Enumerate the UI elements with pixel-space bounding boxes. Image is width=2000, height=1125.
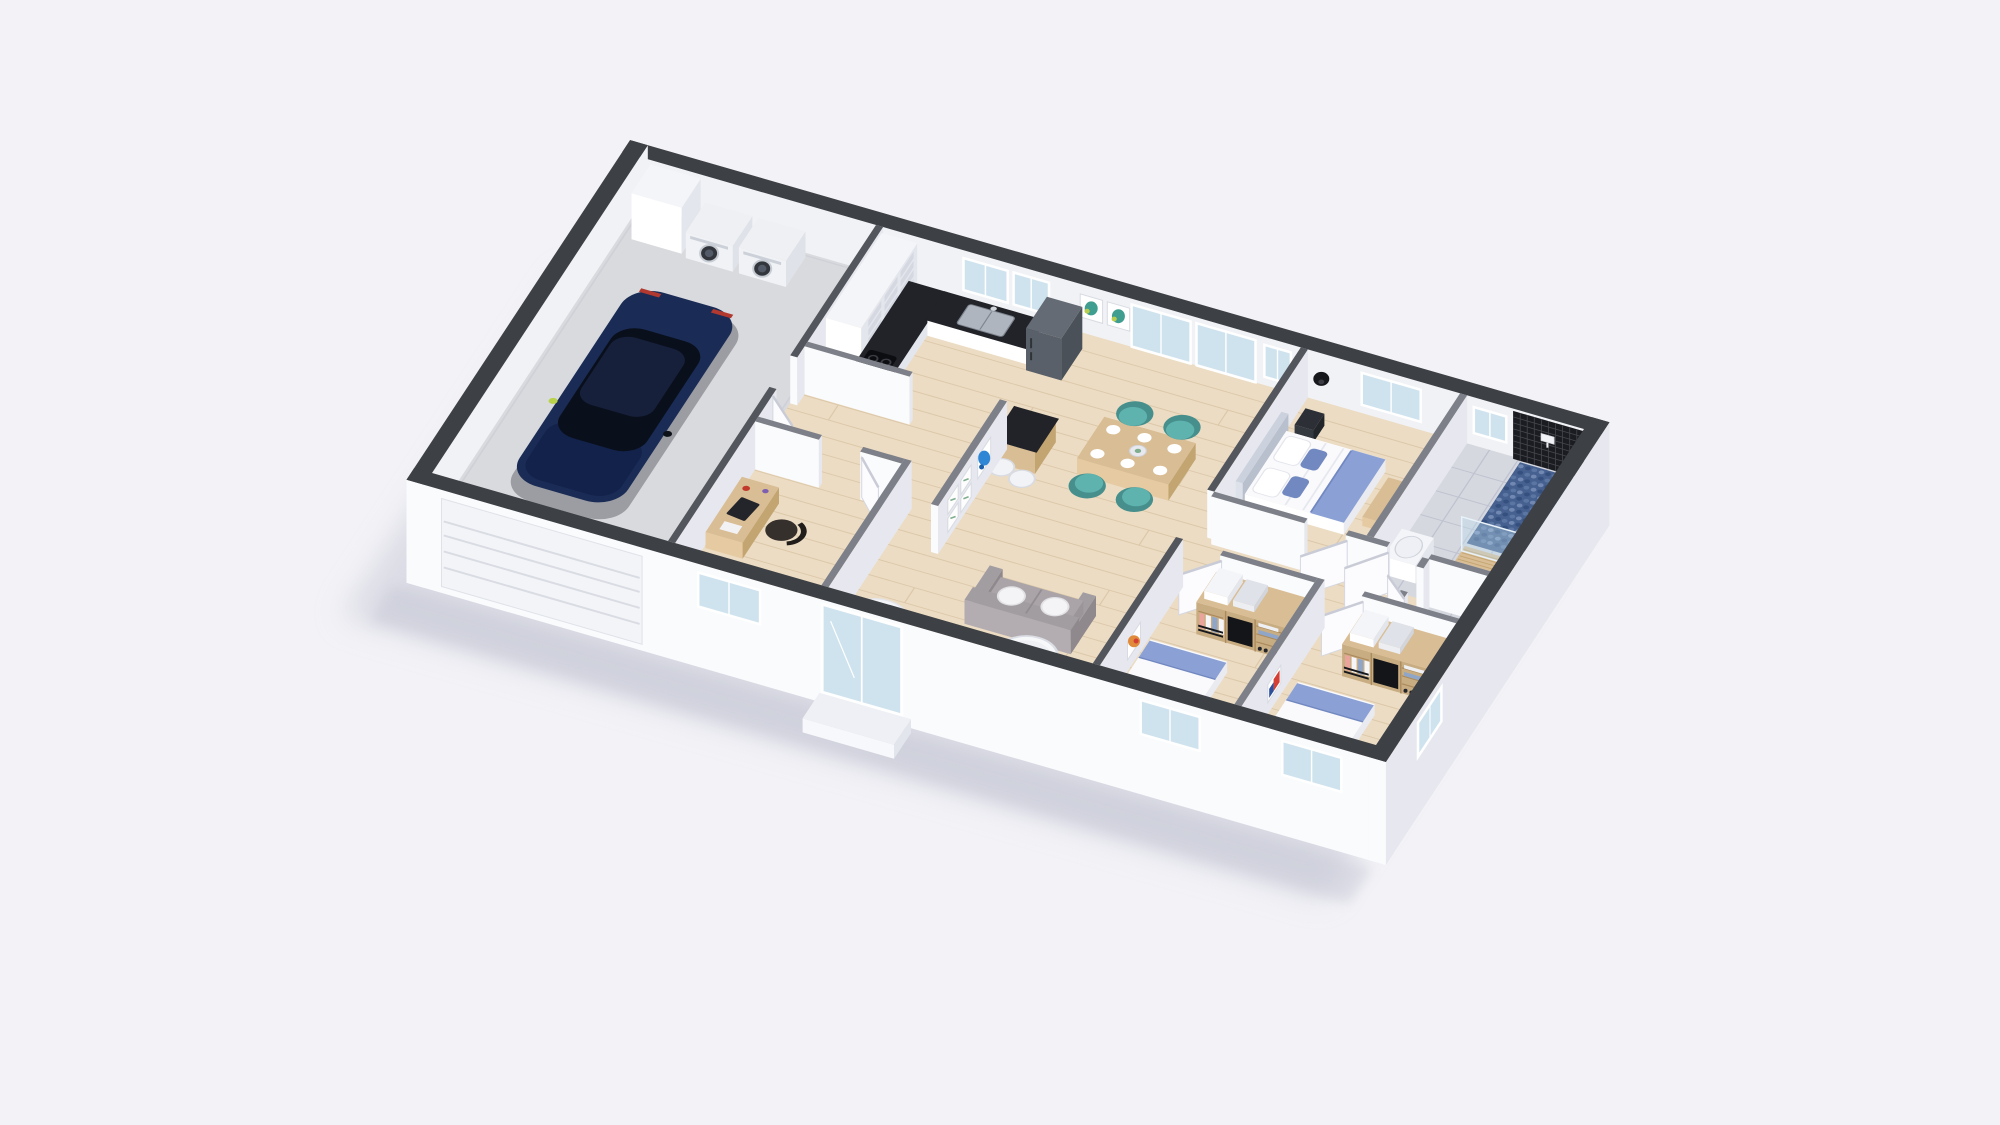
page: { "meta": { "title": "3D isometric dollh… xyxy=(0,0,2000,1125)
floorplan-render xyxy=(0,0,2000,1125)
wall-sconce xyxy=(1313,372,1329,386)
floorplan-stage xyxy=(0,0,2000,1125)
